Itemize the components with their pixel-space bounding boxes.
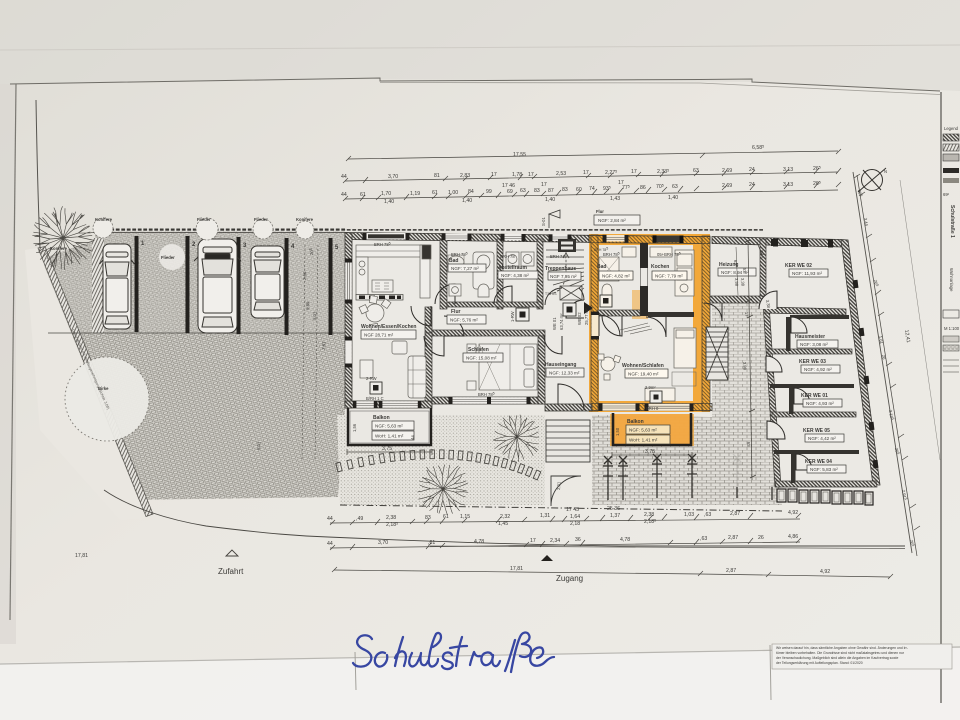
- svg-text:17: 17: [541, 182, 547, 188]
- svg-text:2,87: 2,87: [726, 568, 736, 574]
- svg-text:3,75: 3,75: [382, 446, 392, 452]
- svg-text:2,53: 2,53: [556, 171, 566, 177]
- svg-text:25 36: 25 36: [607, 506, 620, 512]
- svg-text:60: 60: [576, 187, 582, 193]
- svg-text:25,77 m²: 25,77 m²: [584, 308, 589, 325]
- svg-text:36: 36: [575, 537, 581, 543]
- svg-text:17: 17: [528, 172, 534, 178]
- svg-text:,63: ,63: [700, 536, 707, 542]
- svg-text:Bad: Bad: [597, 264, 606, 270]
- svg-text:Konifere: Konifere: [95, 217, 113, 222]
- svg-text:99: 99: [486, 189, 492, 195]
- svg-text:83: 83: [534, 188, 540, 194]
- svg-text:NGF: 4,92 m²: NGF: 4,92 m²: [804, 367, 832, 372]
- svg-text:WE 01: WE 01: [552, 317, 557, 330]
- svg-text:Zugang: Zugang: [556, 574, 583, 583]
- svg-text:3,98: 3,98: [734, 278, 739, 287]
- svg-text:63,74 m²: 63,74 m²: [559, 313, 564, 330]
- svg-text:Konifere: Konifere: [50, 246, 68, 251]
- svg-text:2,01: 2,01: [556, 481, 561, 490]
- svg-text:1,40: 1,40: [462, 198, 472, 204]
- svg-text:05+BRH 785: 05+BRH 785: [657, 252, 681, 257]
- svg-text:4,78: 4,78: [620, 537, 630, 543]
- svg-text:der Teilungserklärung mit Auft: der Teilungserklärung mit Aufteilungspla…: [776, 661, 863, 665]
- svg-text:44: 44: [327, 541, 333, 547]
- svg-text:1,64: 1,64: [570, 514, 580, 520]
- svg-text:NGF: 4,42 m²: NGF: 4,42 m²: [808, 436, 836, 441]
- svg-text:Zufahrt: Zufahrt: [218, 567, 244, 576]
- svg-text:NGF: 12,33 m²: NGF: 12,33 m²: [549, 371, 580, 376]
- svg-text:NGF: 3,08 m²: NGF: 3,08 m²: [800, 342, 828, 347]
- svg-text:KER WE 01: KER WE 01: [801, 393, 828, 399]
- svg-text:63: 63: [693, 168, 699, 174]
- svg-text:Flieder: Flieder: [197, 217, 211, 222]
- svg-text:83: 83: [425, 515, 431, 521]
- svg-text:1,56: 1,56: [352, 423, 357, 432]
- svg-text:17: 17: [583, 170, 589, 176]
- svg-text:9,89: 9,89: [305, 301, 310, 310]
- svg-text:17: 17: [530, 538, 536, 544]
- svg-text:Hausmeister: Hausmeister: [795, 334, 825, 340]
- svg-text:NGF: 19,40 m²: NGF: 19,40 m²: [628, 372, 659, 377]
- svg-text:17: 17: [631, 169, 637, 175]
- svg-text:2,87: 2,87: [730, 511, 740, 517]
- svg-text:63: 63: [672, 184, 678, 190]
- svg-text:2,69: 2,69: [722, 168, 732, 174]
- svg-text:2,9m²: 2,9m²: [645, 385, 656, 390]
- svg-text:3,13: 3,13: [783, 182, 793, 188]
- svg-text:BRH 785: BRH 785: [594, 247, 608, 252]
- svg-text:1,37: 1,37: [610, 513, 620, 519]
- svg-text:KER WE 04: KER WE 04: [805, 459, 832, 465]
- svg-text:NGF 28,71 m²: NGF 28,71 m²: [364, 333, 394, 338]
- svg-text:2,38: 2,38: [386, 515, 396, 521]
- svg-text:1,78: 1,78: [512, 172, 522, 178]
- svg-text:NGF: 4,38 m²: NGF: 4,38 m²: [501, 273, 529, 278]
- svg-text:44: 44: [341, 174, 347, 180]
- svg-text:,61: ,61: [428, 540, 435, 546]
- svg-text:74: 74: [589, 186, 595, 192]
- svg-text:NGF: 4,82 m²: NGF: 4,82 m²: [602, 274, 630, 279]
- svg-text:1,45: 1,45: [498, 521, 508, 527]
- svg-text:1,43: 1,43: [610, 196, 620, 202]
- svg-text:Treppenhaus: Treppenhaus: [545, 266, 576, 272]
- svg-text:T30 RS: T30 RS: [545, 292, 557, 296]
- svg-text:1-RW: 1-RW: [510, 311, 515, 322]
- svg-text:2,38: 2,38: [644, 512, 654, 518]
- svg-text:Schulstraße 1: Schulstraße 1: [949, 205, 955, 238]
- svg-text:KER WE 02: KER WE 02: [785, 263, 812, 269]
- svg-text:Wohnen/Essen/Kochen: Wohnen/Essen/Kochen: [361, 324, 416, 330]
- svg-text:der Veranschaulichung. Maßgebl: der Veranschaulichung. Maßgeblich sind a…: [776, 656, 898, 660]
- svg-text:24: 24: [749, 182, 755, 188]
- svg-text:BRH 78: BRH 78: [500, 254, 515, 259]
- svg-text:NGF: 7,79 m²: NGF: 7,79 m²: [655, 274, 683, 279]
- svg-text:tümer bleiben vorbehalten. Die: tümer bleiben vorbehalten. Die Grundriss…: [776, 651, 905, 655]
- svg-text:87: 87: [548, 188, 554, 194]
- svg-text:BRH 785: BRH 785: [374, 242, 391, 247]
- svg-text:Wohnanlage: Wohnanlage: [949, 268, 954, 292]
- svg-text:69²: 69²: [943, 192, 950, 197]
- svg-text:17,81: 17,81: [75, 553, 88, 559]
- svg-text:BRH 785: BRH 785: [603, 252, 620, 257]
- svg-text:NGF 7,95 m²: NGF 7,95 m²: [550, 274, 577, 279]
- svg-text:1,00: 1,00: [448, 190, 458, 196]
- svg-text:2,69: 2,69: [722, 183, 732, 189]
- svg-text:17,81: 17,81: [510, 566, 523, 572]
- svg-text:NGF: 4,93 m²: NGF: 4,93 m²: [806, 401, 834, 406]
- svg-text:2,32: 2,32: [500, 514, 510, 520]
- svg-text:NGF: 5,83 m²: NGF: 5,83 m²: [810, 467, 838, 472]
- svg-text:WoH: 1,41 m²: WoH: 1,41 m²: [375, 434, 404, 439]
- svg-text:NGF: 7,27 m²: NGF: 7,27 m²: [451, 266, 479, 271]
- svg-text:1,40: 1,40: [384, 199, 394, 205]
- svg-text:Wohnen/Schlafen: Wohnen/Schlafen: [622, 363, 664, 369]
- svg-text:1,70: 1,70: [381, 191, 391, 197]
- svg-text:Legend: Legend: [944, 126, 959, 131]
- svg-text:Hauseingang: Hauseingang: [545, 362, 576, 368]
- svg-text:Flur: Flur: [451, 309, 460, 315]
- svg-text:Wir weisen darauf hin, dass sä: Wir weisen darauf hin, dass sämtliche An…: [776, 646, 908, 650]
- svg-text:Flur: Flur: [596, 209, 604, 214]
- svg-text:WoH: 1,41 m²: WoH: 1,41 m²: [629, 438, 658, 443]
- svg-text:1,15: 1,15: [460, 514, 470, 520]
- svg-text:1,50: 1,50: [615, 427, 620, 436]
- svg-text:NGF: 5,76 m²: NGF: 5,76 m²: [450, 318, 478, 323]
- svg-text:Flieder: Flieder: [254, 217, 268, 222]
- svg-text:,63: ,63: [704, 512, 711, 518]
- svg-text:7,81: 7,81: [321, 341, 326, 350]
- svg-text:1,40: 1,40: [545, 197, 555, 203]
- svg-text:1,40: 1,40: [668, 195, 678, 201]
- svg-text:BRH 74,: BRH 74,: [550, 254, 566, 259]
- svg-text:3,75: 3,75: [645, 449, 655, 455]
- svg-text:BRH 785: BRH 785: [478, 392, 495, 397]
- svg-text:KER WE 03: KER WE 03: [799, 359, 826, 365]
- svg-text:1,03: 1,03: [684, 512, 694, 518]
- svg-text:2,34: 2,34: [550, 538, 560, 544]
- svg-text:3,70: 3,70: [378, 540, 388, 546]
- svg-text:Balkon: Balkon: [627, 419, 644, 425]
- svg-text:86: 86: [640, 185, 646, 191]
- svg-text:81: 81: [434, 173, 440, 179]
- svg-text:61: 61: [360, 192, 366, 198]
- svg-text:3,38: 3,38: [740, 278, 746, 287]
- svg-text:3,88: 3,88: [742, 362, 748, 371]
- svg-text:83: 83: [562, 187, 568, 193]
- svg-text:,49: ,49: [356, 516, 363, 522]
- svg-text:BRH 0: BRH 0: [646, 406, 659, 411]
- svg-text:26: 26: [758, 535, 764, 541]
- svg-text:Abstellraum: Abstellraum: [498, 265, 527, 271]
- svg-text:24: 24: [749, 167, 755, 173]
- svg-text:Balkon: Balkon: [373, 415, 390, 421]
- svg-text:3,70: 3,70: [388, 174, 398, 180]
- svg-text:NGF: 5,63 m²: NGF: 5,63 m²: [375, 424, 403, 429]
- svg-text:4,78: 4,78: [474, 539, 484, 545]
- svg-text:BRH 785: BRH 785: [451, 252, 468, 257]
- svg-text:3,13: 3,13: [783, 167, 793, 173]
- svg-text:4,92: 4,92: [788, 510, 798, 516]
- svg-text:63: 63: [520, 188, 526, 194]
- svg-text:17: 17: [491, 172, 497, 178]
- svg-text:44: 44: [410, 435, 415, 441]
- svg-text:2,18: 2,18: [570, 521, 580, 527]
- svg-text:4,92: 4,92: [820, 569, 830, 575]
- svg-text:NGF: 2,84 m²: NGF: 2,84 m²: [598, 218, 626, 223]
- svg-text:Schlafen: Schlafen: [468, 347, 489, 353]
- svg-text:N: N: [884, 169, 887, 174]
- svg-text:NGF: 15,08 m²: NGF: 15,08 m²: [466, 356, 497, 361]
- svg-text:1,31: 1,31: [540, 513, 550, 519]
- svg-text:2-RW: 2-RW: [366, 376, 377, 381]
- svg-text:61: 61: [432, 190, 438, 196]
- svg-text:17 45: 17 45: [566, 507, 579, 513]
- svg-text:2,87: 2,87: [728, 535, 738, 541]
- svg-text:17,55: 17,55: [513, 152, 526, 158]
- svg-text:44: 44: [327, 516, 333, 522]
- svg-text:S-01: S-01: [541, 216, 546, 226]
- svg-text:KER WE 05: KER WE 05: [803, 428, 830, 434]
- svg-text:NGF: 11,93 m²: NGF: 11,93 m²: [792, 271, 823, 276]
- svg-text:Konifere: Konifere: [296, 217, 314, 222]
- svg-text:WE 02: WE 02: [577, 312, 582, 325]
- svg-text:B/RH 1 C: B/RH 1 C: [366, 396, 384, 401]
- svg-text:Kochen: Kochen: [651, 264, 669, 270]
- svg-text:84: 84: [468, 189, 474, 195]
- svg-text:5,01: 5,01: [312, 311, 317, 320]
- svg-text:69: 69: [507, 189, 513, 195]
- svg-text:Flieder: Flieder: [161, 255, 175, 260]
- svg-text:44: 44: [341, 192, 347, 198]
- svg-text:1,19: 1,19: [410, 191, 420, 197]
- svg-text:61: 61: [443, 514, 449, 520]
- svg-text:NGF: 5,63 m²: NGF: 5,63 m²: [629, 428, 657, 433]
- svg-text:Bad: Bad: [449, 258, 458, 264]
- svg-text:2,83: 2,83: [460, 173, 470, 179]
- svg-text:M 1:100: M 1:100: [944, 326, 960, 331]
- svg-text:4,86: 4,86: [788, 534, 798, 540]
- svg-text:5,01: 5,01: [256, 441, 261, 450]
